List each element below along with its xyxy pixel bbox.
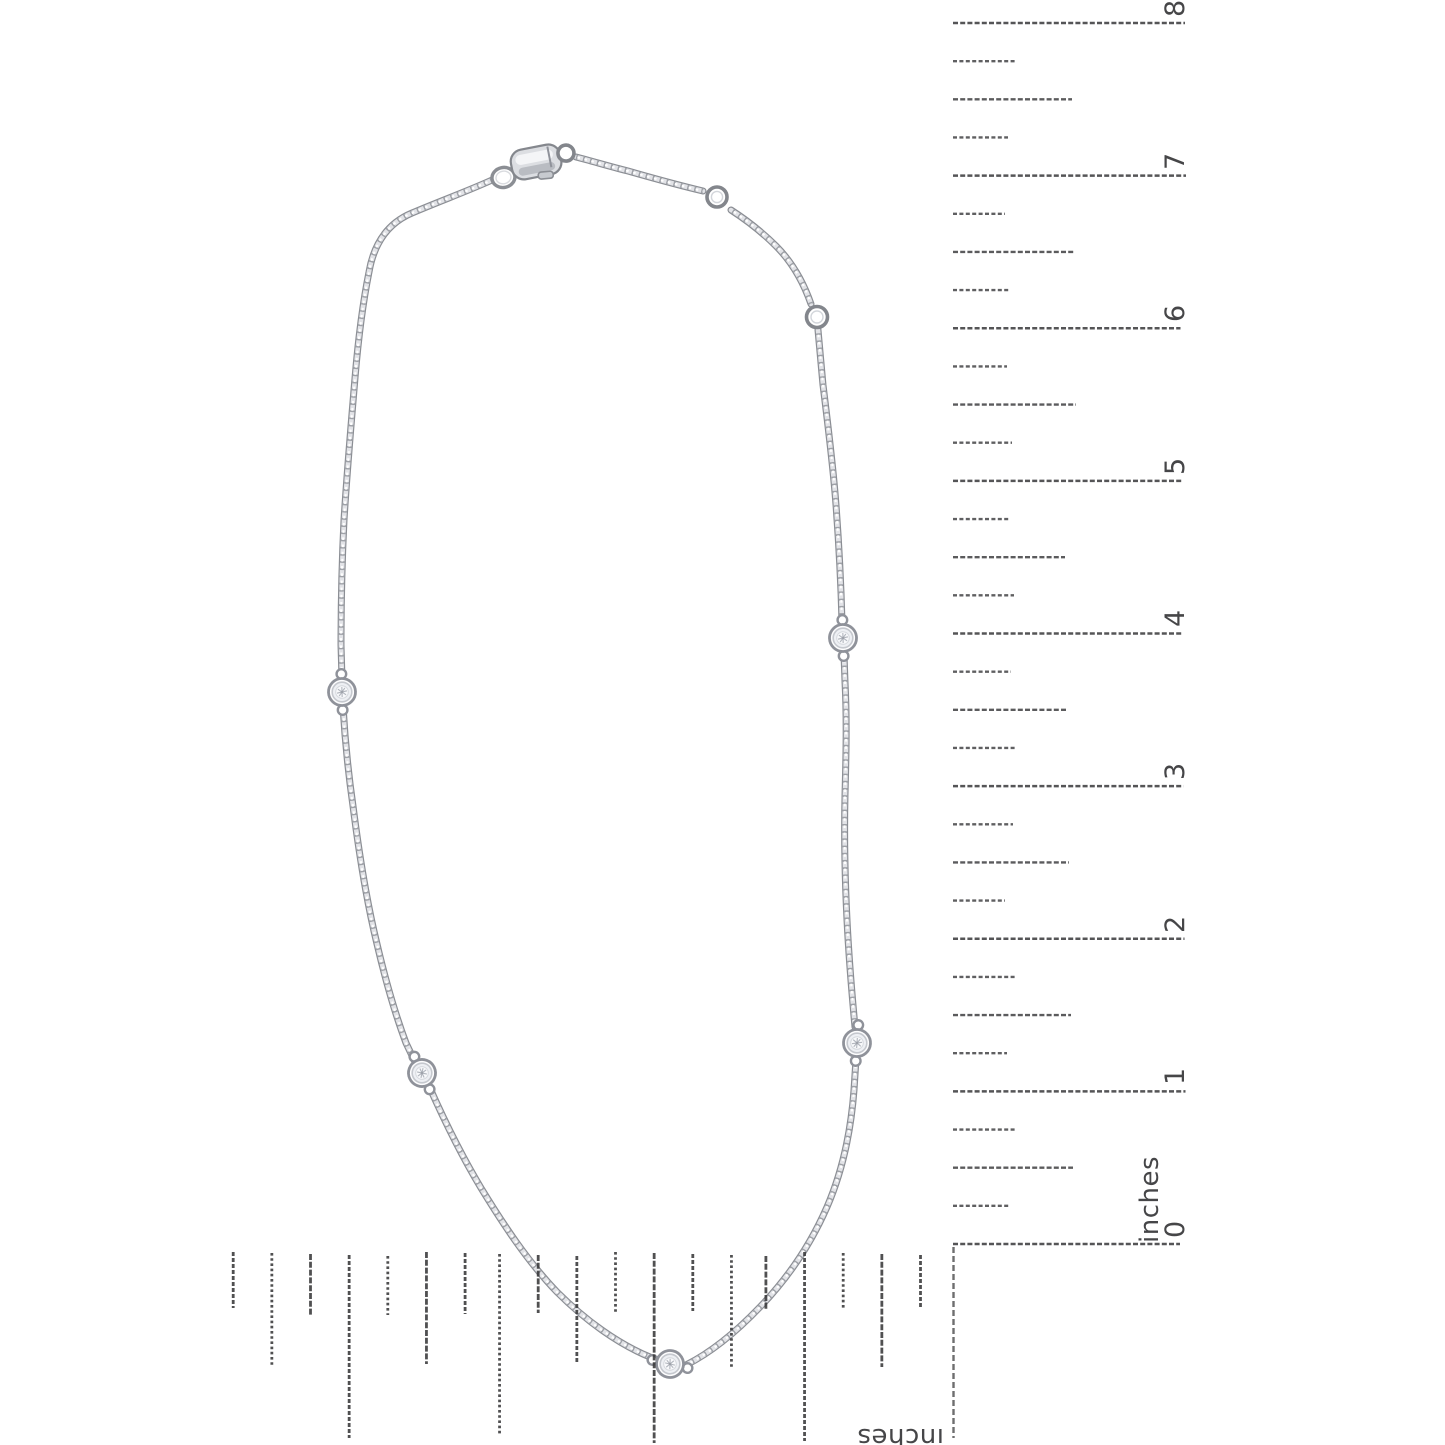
- clasp-loop: [557, 144, 576, 163]
- ruler-right: 0 1 2 3 4 5 6 7 8 inches: [953, 0, 1191, 1438]
- jewelry-photo: 0 1 2 3 4 5 6 7 8 inches inches: [0, 0, 1445, 1445]
- jump-ring-upper: [707, 187, 727, 207]
- chain-mid-stroke: [341, 157, 856, 1365]
- ruler-inch-label-6: 6: [1160, 305, 1191, 322]
- jump-ring-lower: [807, 307, 828, 328]
- necklace-scale-photo: 0 1 2 3 4 5 6 7 8 inches inches: [0, 0, 1445, 1445]
- jump-ring-outer: [807, 307, 828, 328]
- ruler-inch-label-1: 1: [1160, 1068, 1191, 1085]
- chain-link-shadow-stroke: [341, 157, 856, 1365]
- ruler-right-ticks: [953, 23, 1186, 1244]
- jump-ring-outer: [707, 187, 727, 207]
- diamond-station-4: [400, 1047, 444, 1100]
- ruler-inch-label-7: 7: [1160, 153, 1191, 170]
- ruler-inch-label-4: 4: [1160, 610, 1191, 627]
- ruler-bottom: inches: [233, 1252, 944, 1445]
- diamond-station-5: [645, 1346, 696, 1383]
- ruler-inch-label-8: 8: [1160, 0, 1191, 17]
- ruler-inch-label-3: 3: [1160, 763, 1191, 780]
- ruler-bottom-unit-label: inches: [857, 1422, 944, 1445]
- diamond-station-1: [328, 669, 357, 716]
- necklace-chain: [341, 157, 856, 1365]
- chain-base-stroke: [341, 157, 856, 1365]
- ruler-bottom-ticks: [233, 1252, 920, 1443]
- ruler-right-unit-label: inches: [1135, 1156, 1165, 1243]
- chain-link-highlight-stroke: [341, 157, 856, 1365]
- diamond-station-2: [829, 615, 858, 662]
- lobster-clasp: [488, 140, 578, 190]
- ruler-inch-label-2: 2: [1160, 916, 1191, 933]
- ruler-inch-label-5: 5: [1160, 458, 1191, 475]
- diamond-station-3: [842, 1019, 872, 1066]
- clasp-trigger: [538, 171, 554, 179]
